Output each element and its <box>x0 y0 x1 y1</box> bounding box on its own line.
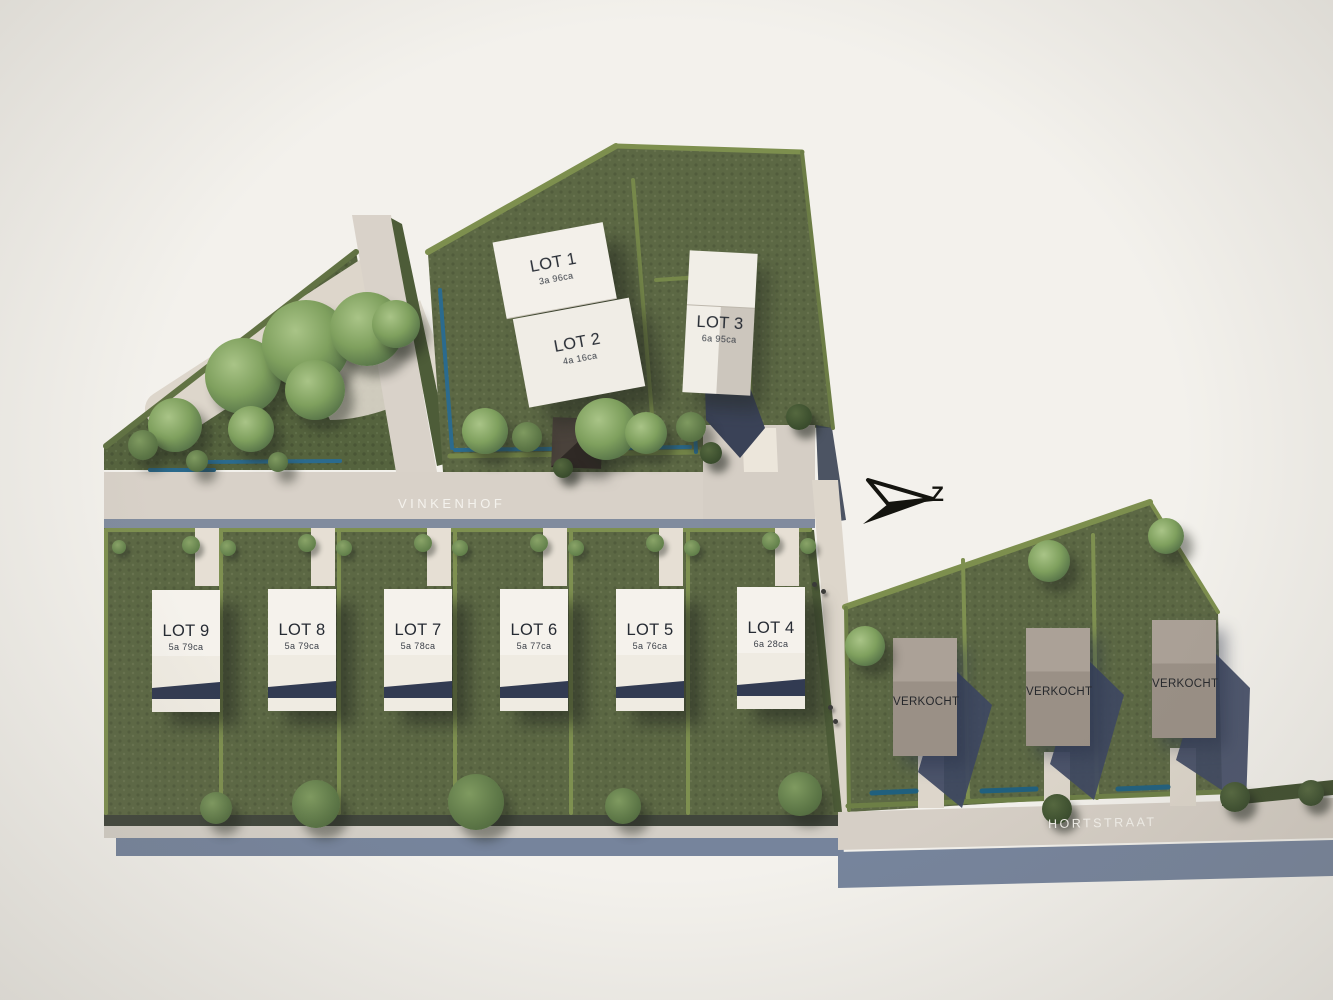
compass-label: Z <box>931 483 944 507</box>
tree <box>605 788 641 824</box>
bush <box>182 536 200 554</box>
lot-marker-lot9[interactable]: LOT 95a 79ca <box>152 590 220 712</box>
tree <box>778 772 822 816</box>
lot-marker-lot5[interactable]: LOT 55a 76ca <box>616 589 684 711</box>
lot-area: 6a 95ca <box>685 332 753 346</box>
tree <box>1220 782 1250 812</box>
person-figure <box>833 719 838 724</box>
lot-marker-lot3[interactable]: LOT 3 6a 95ca <box>682 250 757 395</box>
lot-area: 5a 77ca <box>500 641 568 651</box>
tree <box>1028 540 1070 582</box>
tree <box>285 360 345 420</box>
tree <box>676 412 706 442</box>
slate-band-left <box>116 838 844 856</box>
carport-band <box>384 681 452 698</box>
tree <box>372 300 420 348</box>
compass-icon <box>863 480 933 524</box>
sold-marker-2[interactable]: VERKOCHT <box>1026 628 1090 746</box>
lot-name: LOT 4 <box>737 619 805 638</box>
lot-area: 5a 78ca <box>384 641 452 651</box>
lot-name: LOT 9 <box>152 622 220 641</box>
tree <box>1148 518 1184 554</box>
carport-band <box>500 681 568 698</box>
tree <box>268 452 288 472</box>
carport-band <box>152 682 220 699</box>
street-hortstraat-label: HORTSTRAAT <box>1048 815 1157 831</box>
tree <box>200 792 232 824</box>
bush <box>800 538 816 554</box>
lot-name: LOT 5 <box>616 621 684 640</box>
bush <box>568 540 584 556</box>
lot-name: LOT 6 <box>500 621 568 640</box>
tree <box>462 408 508 454</box>
lot-name: LOT 3 <box>686 312 755 335</box>
lot-name: LOT 7 <box>384 621 452 640</box>
tree <box>1298 780 1324 806</box>
bush <box>646 534 664 552</box>
lot-marker-lot4[interactable]: LOT 46a 28ca <box>737 587 805 709</box>
bush <box>336 540 352 556</box>
carport-band <box>268 681 336 698</box>
lot-area: 5a 76ca <box>616 641 684 651</box>
bush <box>298 534 316 552</box>
tree <box>700 442 722 464</box>
sold-label: VERKOCHT <box>1152 678 1216 690</box>
bush <box>452 540 468 556</box>
bush <box>112 540 126 554</box>
lot-area: 5a 79ca <box>268 641 336 651</box>
sold-marker-3[interactable]: VERKOCHT <box>1152 620 1216 738</box>
tree <box>512 422 542 452</box>
tree <box>228 406 274 452</box>
bush <box>530 534 548 552</box>
person-figure <box>821 589 826 594</box>
bush <box>762 532 780 550</box>
tree <box>292 780 340 828</box>
tree <box>128 430 158 460</box>
bush <box>414 534 432 552</box>
lot-area: 6a 28ca <box>737 639 805 649</box>
bush <box>220 540 236 556</box>
tree <box>553 458 573 478</box>
tree <box>786 404 812 430</box>
sold-label: VERKOCHT <box>1026 686 1090 698</box>
lot-marker-lot7[interactable]: LOT 75a 78ca <box>384 589 452 711</box>
lot-marker-lot8[interactable]: LOT 85a 79ca <box>268 589 336 711</box>
lot-area: 5a 79ca <box>152 642 220 652</box>
tree <box>186 450 208 472</box>
road-gutter <box>104 519 815 528</box>
lot-name: LOT 8 <box>268 621 336 640</box>
sold-label: VERKOCHT <box>893 696 957 708</box>
tree <box>845 626 885 666</box>
person-figure <box>828 705 833 710</box>
carport-band <box>616 681 684 698</box>
tree <box>625 412 667 454</box>
lot-marker-lot6[interactable]: LOT 65a 77ca <box>500 589 568 711</box>
street-vinkenhof-label: VINKENHOF <box>398 496 505 511</box>
ground-layer <box>0 0 1333 1000</box>
tree <box>448 774 504 830</box>
site-plan: LOT 1 3a 96ca LOT 2 4a 16ca LOT 3 6a 95c… <box>0 0 1333 1000</box>
bush <box>684 540 700 556</box>
sold-marker-1[interactable]: VERKOCHT <box>893 638 957 756</box>
carport-band <box>737 679 805 696</box>
person-figure <box>812 582 817 587</box>
